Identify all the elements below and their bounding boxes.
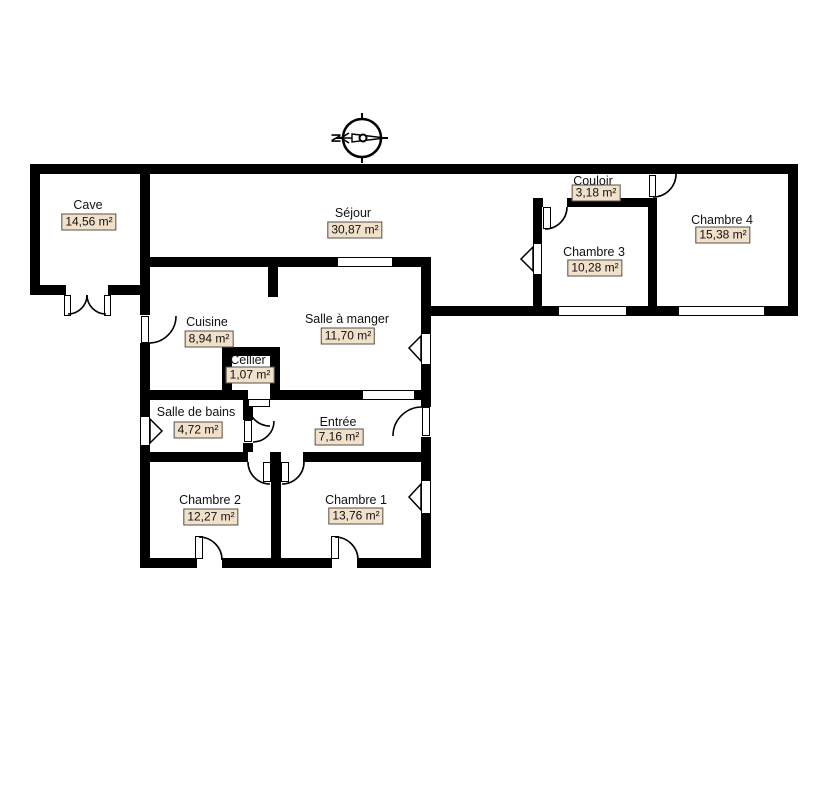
room-area-chambre-2: 12,27 m²: [183, 509, 238, 526]
room-area-couloir: 3,18 m²: [572, 185, 621, 202]
north-letter: N: [329, 133, 344, 142]
floor-plan: N Cave 14,56 m² Séjour 30,87 m² Couloir …: [0, 0, 827, 788]
room-area-chambre-4: 15,38 m²: [695, 227, 750, 244]
arc-chambre2-sud: [199, 537, 222, 560]
arc-chambre3: [545, 207, 567, 229]
arrow-salle-a-manger-est: [409, 336, 421, 361]
room-label-cave: Cave: [73, 198, 102, 212]
arc-chambre1-nord: [282, 462, 304, 484]
room-label-chambre-2: Chambre 2: [179, 493, 241, 507]
arc-cellier: [248, 404, 270, 426]
arc-entree: [393, 407, 422, 436]
room-area-chambre-3: 10,28 m²: [567, 260, 622, 277]
room-label-salle-de-bains: Salle de bains: [157, 405, 236, 419]
arrow-chambre3-ouest: [521, 247, 533, 271]
compass-hub: [360, 135, 367, 142]
room-label-chambre-4: Chambre 4: [691, 213, 753, 227]
arc-chambre2-nord: [248, 462, 270, 484]
room-label-salle-a-manger: Salle à manger: [305, 312, 389, 326]
arc-cave-gauche: [68, 295, 87, 314]
room-label-chambre-1: Chambre 1: [325, 493, 387, 507]
room-area-sejour: 30,87 m²: [327, 222, 382, 239]
floor-plan-symbols-layer: N: [0, 0, 827, 788]
room-area-entree: 7,16 m²: [315, 429, 364, 446]
room-label-entree: Entrée: [320, 415, 357, 429]
room-area-cellier: 1,07 m²: [226, 367, 275, 384]
room-area-cave: 14,56 m²: [61, 214, 116, 231]
room-label-chambre-3: Chambre 3: [563, 245, 625, 259]
arc-salle-de-bains: [253, 421, 274, 442]
arrow-salle-de-bains-ouest: [150, 419, 162, 443]
room-label-cuisine: Cuisine: [186, 315, 228, 329]
arc-chambre1-sud: [335, 537, 358, 560]
room-label-sejour: Séjour: [335, 206, 371, 220]
room-area-cuisine: 8,94 m²: [185, 331, 234, 348]
room-area-salle-de-bains: 4,72 m²: [174, 422, 223, 439]
arrow-chambre1-est: [409, 484, 421, 510]
arc-cuisine: [149, 316, 176, 343]
room-area-salle-a-manger: 11,70 m²: [321, 328, 375, 345]
room-area-chambre-1: 13,76 m²: [328, 508, 383, 525]
room-label-cellier: Cellier: [230, 353, 265, 367]
arc-cave-droite: [87, 295, 106, 314]
arc-chambre4: [653, 174, 676, 197]
